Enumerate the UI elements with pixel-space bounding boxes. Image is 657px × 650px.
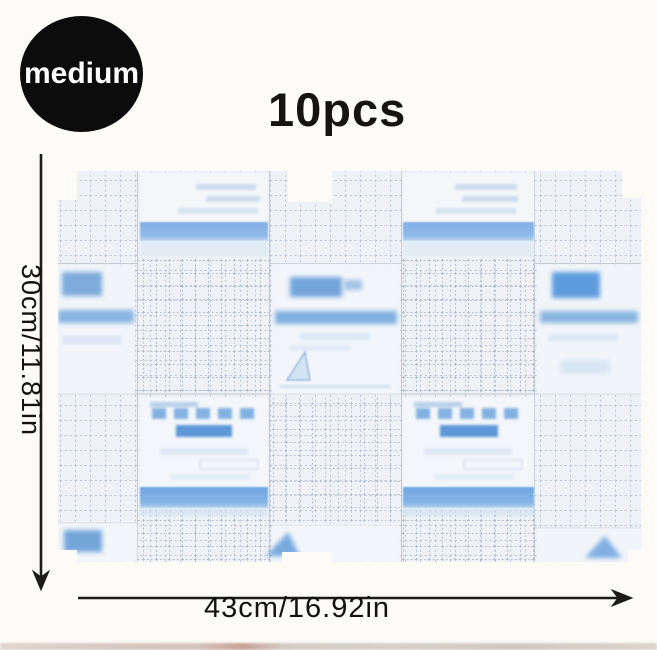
adjacent-image-edge: [0, 643, 657, 650]
blue-band: [140, 487, 268, 508]
grid-pattern: [50, 165, 650, 570]
label-panel-bottom-left: [140, 397, 268, 516]
triangle-logo: [287, 352, 310, 380]
bottom-strip-col5: [537, 528, 641, 562]
triangle-logo: [585, 536, 622, 558]
blue-band: [403, 222, 534, 241]
blue-band: [403, 487, 534, 508]
product-photo-canvas: medium 10pcs: [0, 0, 657, 650]
label-panel-top-right: [403, 173, 534, 258]
size-badge: medium: [20, 16, 143, 132]
cut-lines: [58, 171, 641, 562]
blue-stripe: [540, 311, 638, 323]
arrow-down-icon: [33, 571, 49, 590]
product-name-smudge: [440, 425, 498, 437]
width-dimension-label: 43cm/16.92in: [147, 592, 447, 625]
brand-logo-smudge: [290, 277, 342, 297]
arrow-right-icon: [612, 590, 632, 606]
blue-band: [140, 222, 268, 241]
height-dimension-label: 30cm/11.81in: [6, 130, 46, 570]
label-panel-mid-col5: [537, 265, 641, 394]
blue-stripe: [58, 310, 134, 323]
quantity-label: 10pcs: [268, 82, 406, 137]
bottom-strip-col1: [58, 519, 137, 562]
sheet-base: [58, 171, 641, 562]
label-panel-mid-col3: [272, 264, 400, 394]
product-name-smudge: [176, 425, 232, 437]
bottom-strip-col3: [266, 525, 400, 562]
size-badge-label: medium: [24, 57, 139, 91]
blue-stripe: [275, 311, 397, 324]
label-panel-mid-col1: [58, 265, 135, 394]
instruction-icons-smudge: [152, 408, 254, 419]
brand-logo-smudge: [64, 530, 102, 552]
instruction-icons-smudge: [416, 408, 518, 419]
brand-logo-smudge: [62, 272, 102, 296]
triangle-logo: [266, 532, 300, 556]
label-panel-bottom-right: [403, 397, 534, 516]
brand-logo-smudge: [552, 272, 600, 298]
product-sheet: [50, 165, 650, 570]
label-panel-top-left: [140, 173, 268, 258]
